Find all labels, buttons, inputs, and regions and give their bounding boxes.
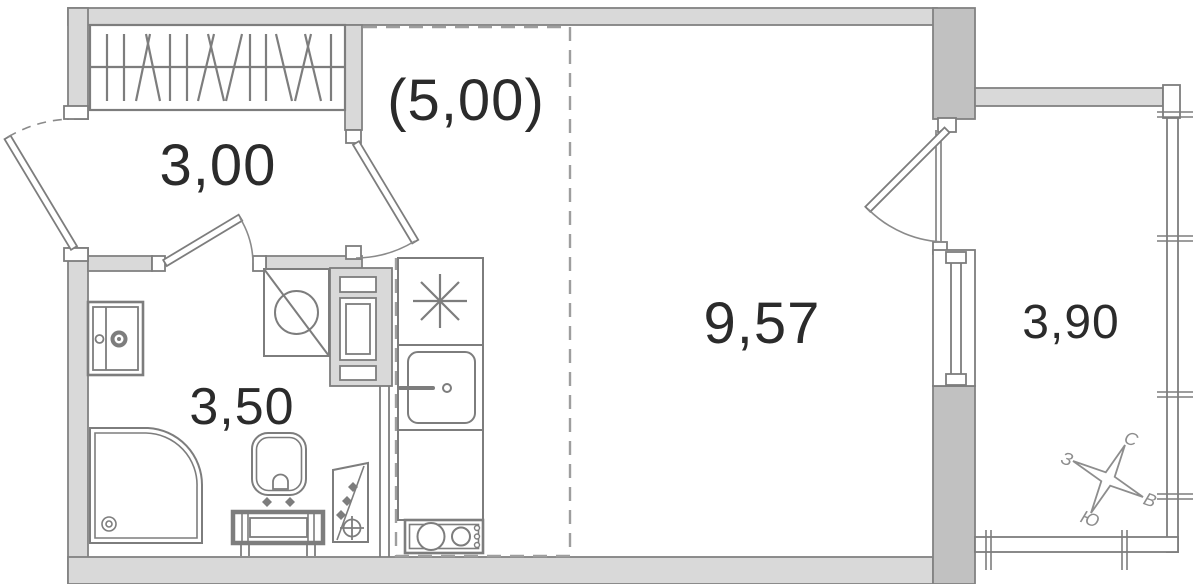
compass-rose-icon	[1073, 445, 1143, 513]
cooktop-icon	[405, 520, 483, 553]
kitchen-fixtures	[398, 258, 483, 553]
bathroom-partition	[380, 386, 389, 557]
wardrobe-icon	[90, 25, 345, 110]
left-wall-lower	[68, 248, 88, 584]
left-wall-upper	[68, 8, 88, 119]
shower-tray-icon	[90, 428, 202, 543]
room-label-bathroom: 3,50	[189, 381, 294, 433]
balcony-door-icon	[865, 118, 956, 254]
room-label-kitchen-zone: (5,00)	[387, 72, 545, 130]
balcony-window-icon	[933, 250, 975, 386]
kitchen-counter-icon	[398, 430, 483, 520]
room-label-balcony: 3,90	[1022, 299, 1119, 347]
balcony-corner-post	[1163, 85, 1180, 118]
floor-plan-canvas: 3,00 (5,00) 9,57 3,50 3,90 С В Ю З	[0, 0, 1194, 584]
top-wall	[68, 8, 937, 25]
pillar-bottom-right	[933, 386, 975, 584]
washing-machine-icon	[264, 269, 329, 356]
plumbing-riser-icon	[333, 463, 368, 542]
balcony-rail-bottom	[975, 537, 1178, 552]
kitchen-sink-icon	[398, 345, 483, 430]
hall-kitchen-wall	[345, 25, 362, 130]
bottom-wall	[68, 557, 933, 584]
washbasin-cabinet-icon	[88, 302, 143, 375]
toilet-icon	[233, 433, 323, 556]
pillar-top-right	[933, 8, 975, 119]
room-label-living-room: 9,57	[704, 295, 821, 353]
room-label-hallway: 3,00	[160, 137, 277, 195]
bathroom-wall-left	[88, 256, 152, 271]
interior-door-kitchen-icon	[346, 130, 418, 259]
balcony-rail-right	[1167, 112, 1178, 552]
fridge-snowflake-icon	[398, 258, 483, 345]
floor-plan-drawing	[0, 0, 1194, 584]
vent-shaft-icon	[330, 268, 392, 386]
interior-door-bathroom-icon	[152, 215, 266, 271]
entrance-door-icon	[5, 106, 88, 261]
balcony-slab	[975, 88, 1163, 106]
